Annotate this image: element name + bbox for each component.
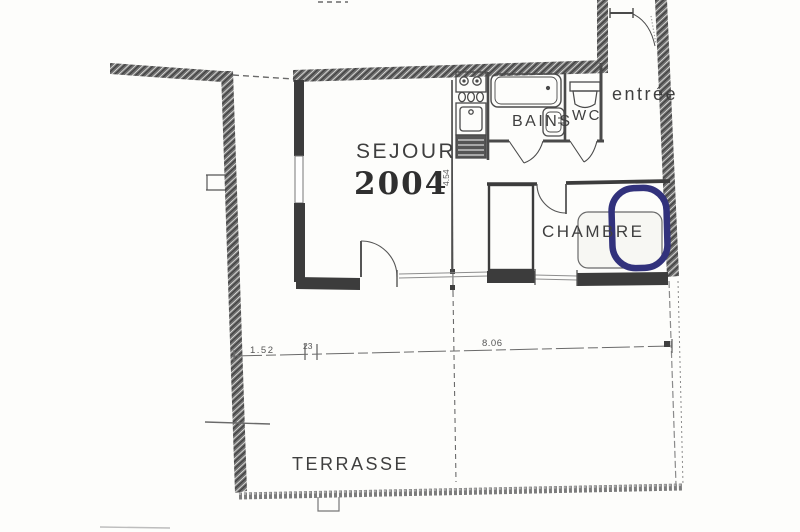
dim-terrasse-left: 1.52 [250, 345, 275, 356]
toilet-bowl [573, 91, 597, 108]
chambre-closet [489, 185, 533, 270]
terrace-dimension-line [234, 339, 672, 362]
left-wall-bracket [206, 175, 225, 190]
scan-artifact-line [100, 527, 170, 528]
sejour-left-wall-upper [294, 80, 304, 156]
kitchen-fixtures [456, 72, 488, 160]
dim-sejour-vertical: 4.54 [441, 169, 451, 186]
terrasse-label: TERRASSE [292, 454, 409, 474]
toilet-tank [570, 82, 600, 91]
wall-terrace-bottom [239, 487, 683, 496]
dim-terrasse-main: 8.06 [482, 338, 503, 349]
terrace-right-edge [669, 281, 683, 485]
chambre-bottom-wall-left [487, 271, 535, 283]
sejour-window [295, 156, 303, 203]
chambre-door [537, 184, 566, 214]
dim-vertical-line-dashed [453, 292, 456, 482]
bains-label: BAINS [512, 113, 573, 130]
chambre-bottom-wall-right [577, 272, 668, 286]
hob-knob [477, 92, 484, 101]
dim-terrasse-small: 23 [303, 341, 313, 351]
chambre-window [535, 269, 577, 286]
wc-label: WC [572, 107, 602, 124]
bains-door [509, 141, 543, 163]
sejour-bottom-wall [296, 277, 360, 290]
terrace-threshold [399, 272, 488, 278]
wc-door [570, 141, 597, 162]
entree-label: entrée [612, 84, 678, 104]
wall-entree-left [597, 0, 608, 64]
sejour-left-wall-lower [294, 203, 305, 282]
chambre-label: CHAMBRE [542, 222, 645, 241]
terrace-notch [318, 497, 339, 511]
sejour-year-label: 2004 [354, 166, 448, 202]
floor-plan-drawing: SEJOUR 2004 BAINS WC entrée CHAMBRE TERR… [0, 0, 800, 532]
bathtub [491, 74, 561, 107]
sejour-label: SEJOUR [356, 140, 456, 163]
wall-left [221, 71, 247, 493]
wall-top-left [110, 63, 222, 82]
hob-knob [459, 92, 466, 101]
hob-knob [468, 92, 475, 101]
chambre-top-wall-right [566, 181, 670, 183]
sejour-terrace-door [361, 241, 397, 287]
entree-door [610, 8, 656, 46]
floor-plan-page: SEJOUR 2004 BAINS WC entrée CHAMBRE TERR… [0, 0, 800, 532]
